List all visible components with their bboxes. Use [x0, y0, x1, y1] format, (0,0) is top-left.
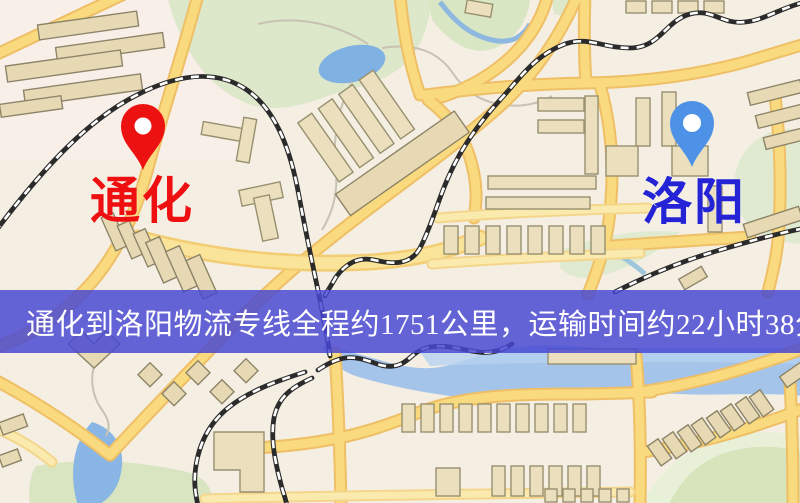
origin-marker[interactable] — [119, 102, 167, 170]
logistics-route-map: 通化 洛阳 通化到洛阳物流专线全程约1751公里，运输时间约22小时38分钟. — [0, 0, 800, 503]
route-info-banner: 通化到洛阳物流专线全程约1751公里，运输时间约22小时38分钟. — [0, 290, 800, 353]
blue-pin-icon — [668, 99, 716, 167]
route-info-text: 通化到洛阳物流专线全程约1751公里，运输时间约22小时38分钟. — [26, 301, 800, 343]
destination-marker[interactable] — [668, 99, 716, 167]
red-pin-icon — [119, 102, 167, 170]
map-canvas[interactable] — [0, 0, 800, 503]
origin-city-label: 通化 — [90, 176, 194, 226]
destination-city-label: 洛阳 — [642, 177, 746, 227]
